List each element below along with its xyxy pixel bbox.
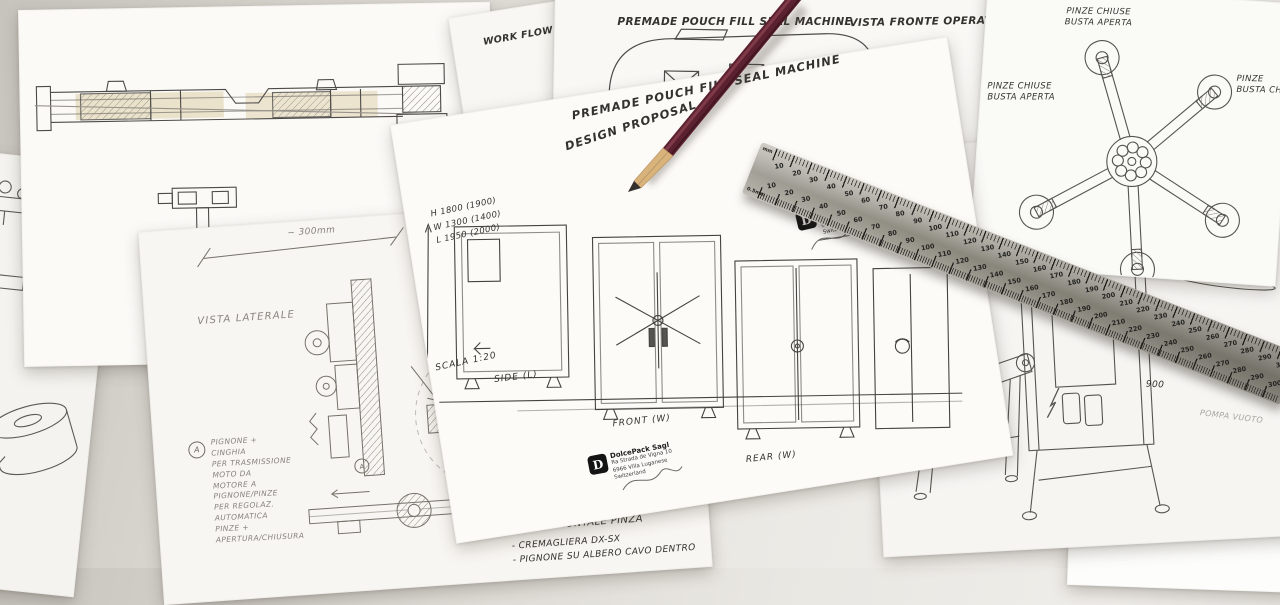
pinze-label-left: PINZE CHIUSE BUSTA APERTA	[987, 82, 1055, 104]
pinze-label-top: PINZE CHIUSE BUSTA APERTA	[1065, 6, 1133, 30]
svg-text:A: A	[359, 463, 365, 471]
mechanism-notes: PIGNONE + CINGHIA PER TRASMISSIONE MOTO …	[210, 433, 304, 546]
cabinet-views-sketch	[391, 38, 1012, 543]
dolcepack-logo-mark: D	[587, 453, 609, 475]
sheet-center-main: PREMADE POUCH FILL SEAL MACHINE DESIGN P…	[390, 37, 1013, 544]
pinze-label-right: PINZE BUSTA CHI	[1236, 74, 1280, 97]
dim-900-label: 900	[1146, 380, 1165, 393]
